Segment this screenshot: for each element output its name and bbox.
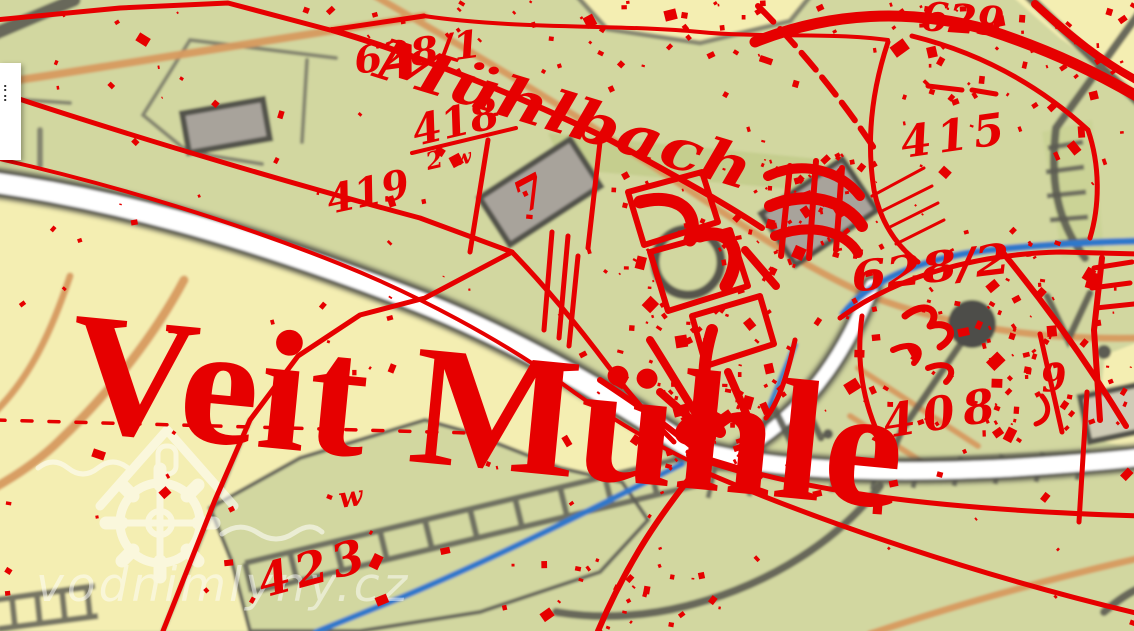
clipped-side-panel: : :	[0, 63, 21, 160]
clipped-panel-text: :	[0, 93, 21, 103]
parcel-label: 629	[919, 0, 1006, 46]
map-canvas[interactable]: vodnimlyny.cz	[0, 0, 1134, 631]
parcel-label: 9	[1038, 353, 1069, 401]
map-viewport[interactable]: vodnimlyny.cz	[0, 0, 1134, 631]
